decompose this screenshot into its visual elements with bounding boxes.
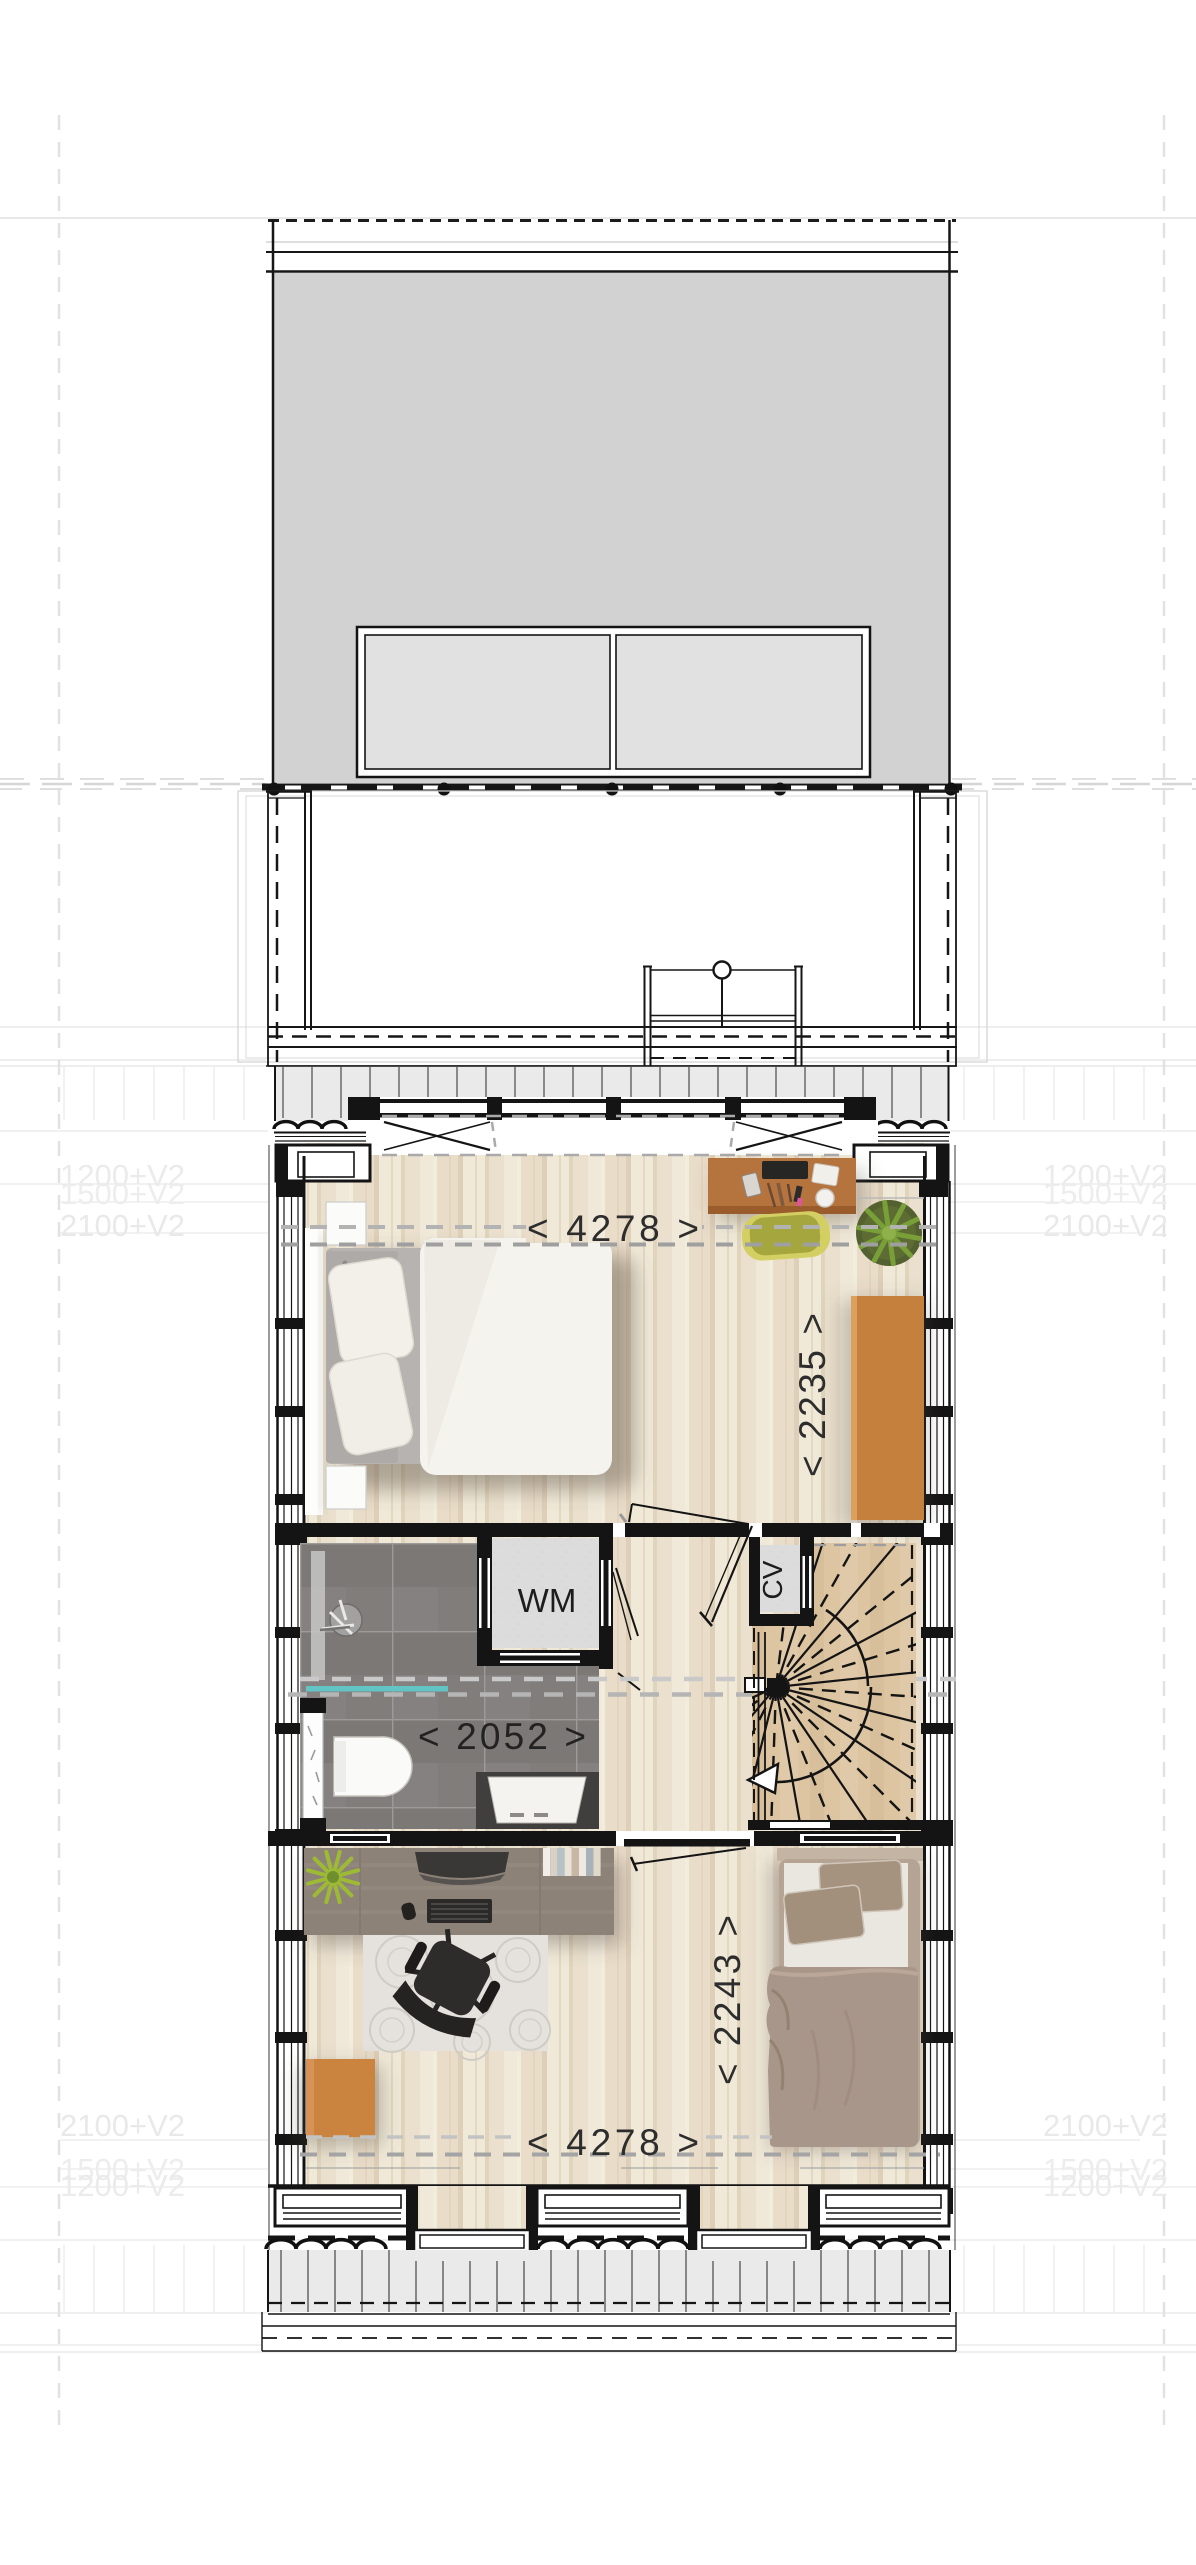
svg-text:1200+V2: 1200+V2 (1043, 2168, 1168, 2203)
svg-text:2100+V2: 2100+V2 (1043, 1208, 1168, 1243)
svg-text:1500+V2: 1500+V2 (1043, 1176, 1168, 1211)
svg-text:2100+V2: 2100+V2 (1043, 2108, 1168, 2143)
svg-text:1500+V2: 1500+V2 (60, 1176, 185, 1211)
svg-text:2100+V2: 2100+V2 (60, 1208, 185, 1243)
svg-text:1200+V2: 1200+V2 (60, 2168, 185, 2203)
svg-text:WM: WM (518, 1582, 577, 1619)
svg-text:2100+V2: 2100+V2 (60, 2108, 185, 2143)
svg-text:CV: CV (757, 1560, 788, 1599)
